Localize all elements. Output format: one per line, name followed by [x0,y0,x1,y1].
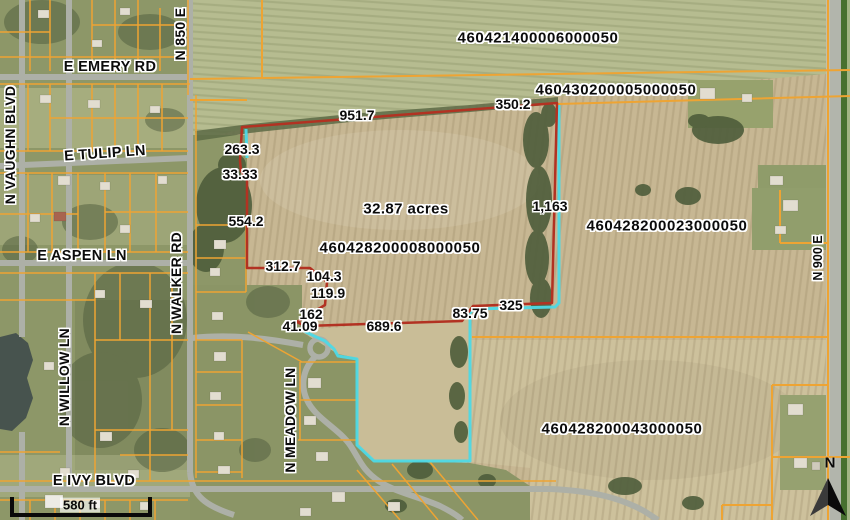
north-arrow-label: N [825,455,836,472]
parcel-map-canvas[interactable]: 460421400006000050 460430200005000050 46… [0,0,850,520]
north-arrow-icon [800,470,850,520]
north-arrow: N [800,455,850,520]
scale-bar-label: 580 ft [60,498,100,513]
aerial-imagery [0,0,850,520]
